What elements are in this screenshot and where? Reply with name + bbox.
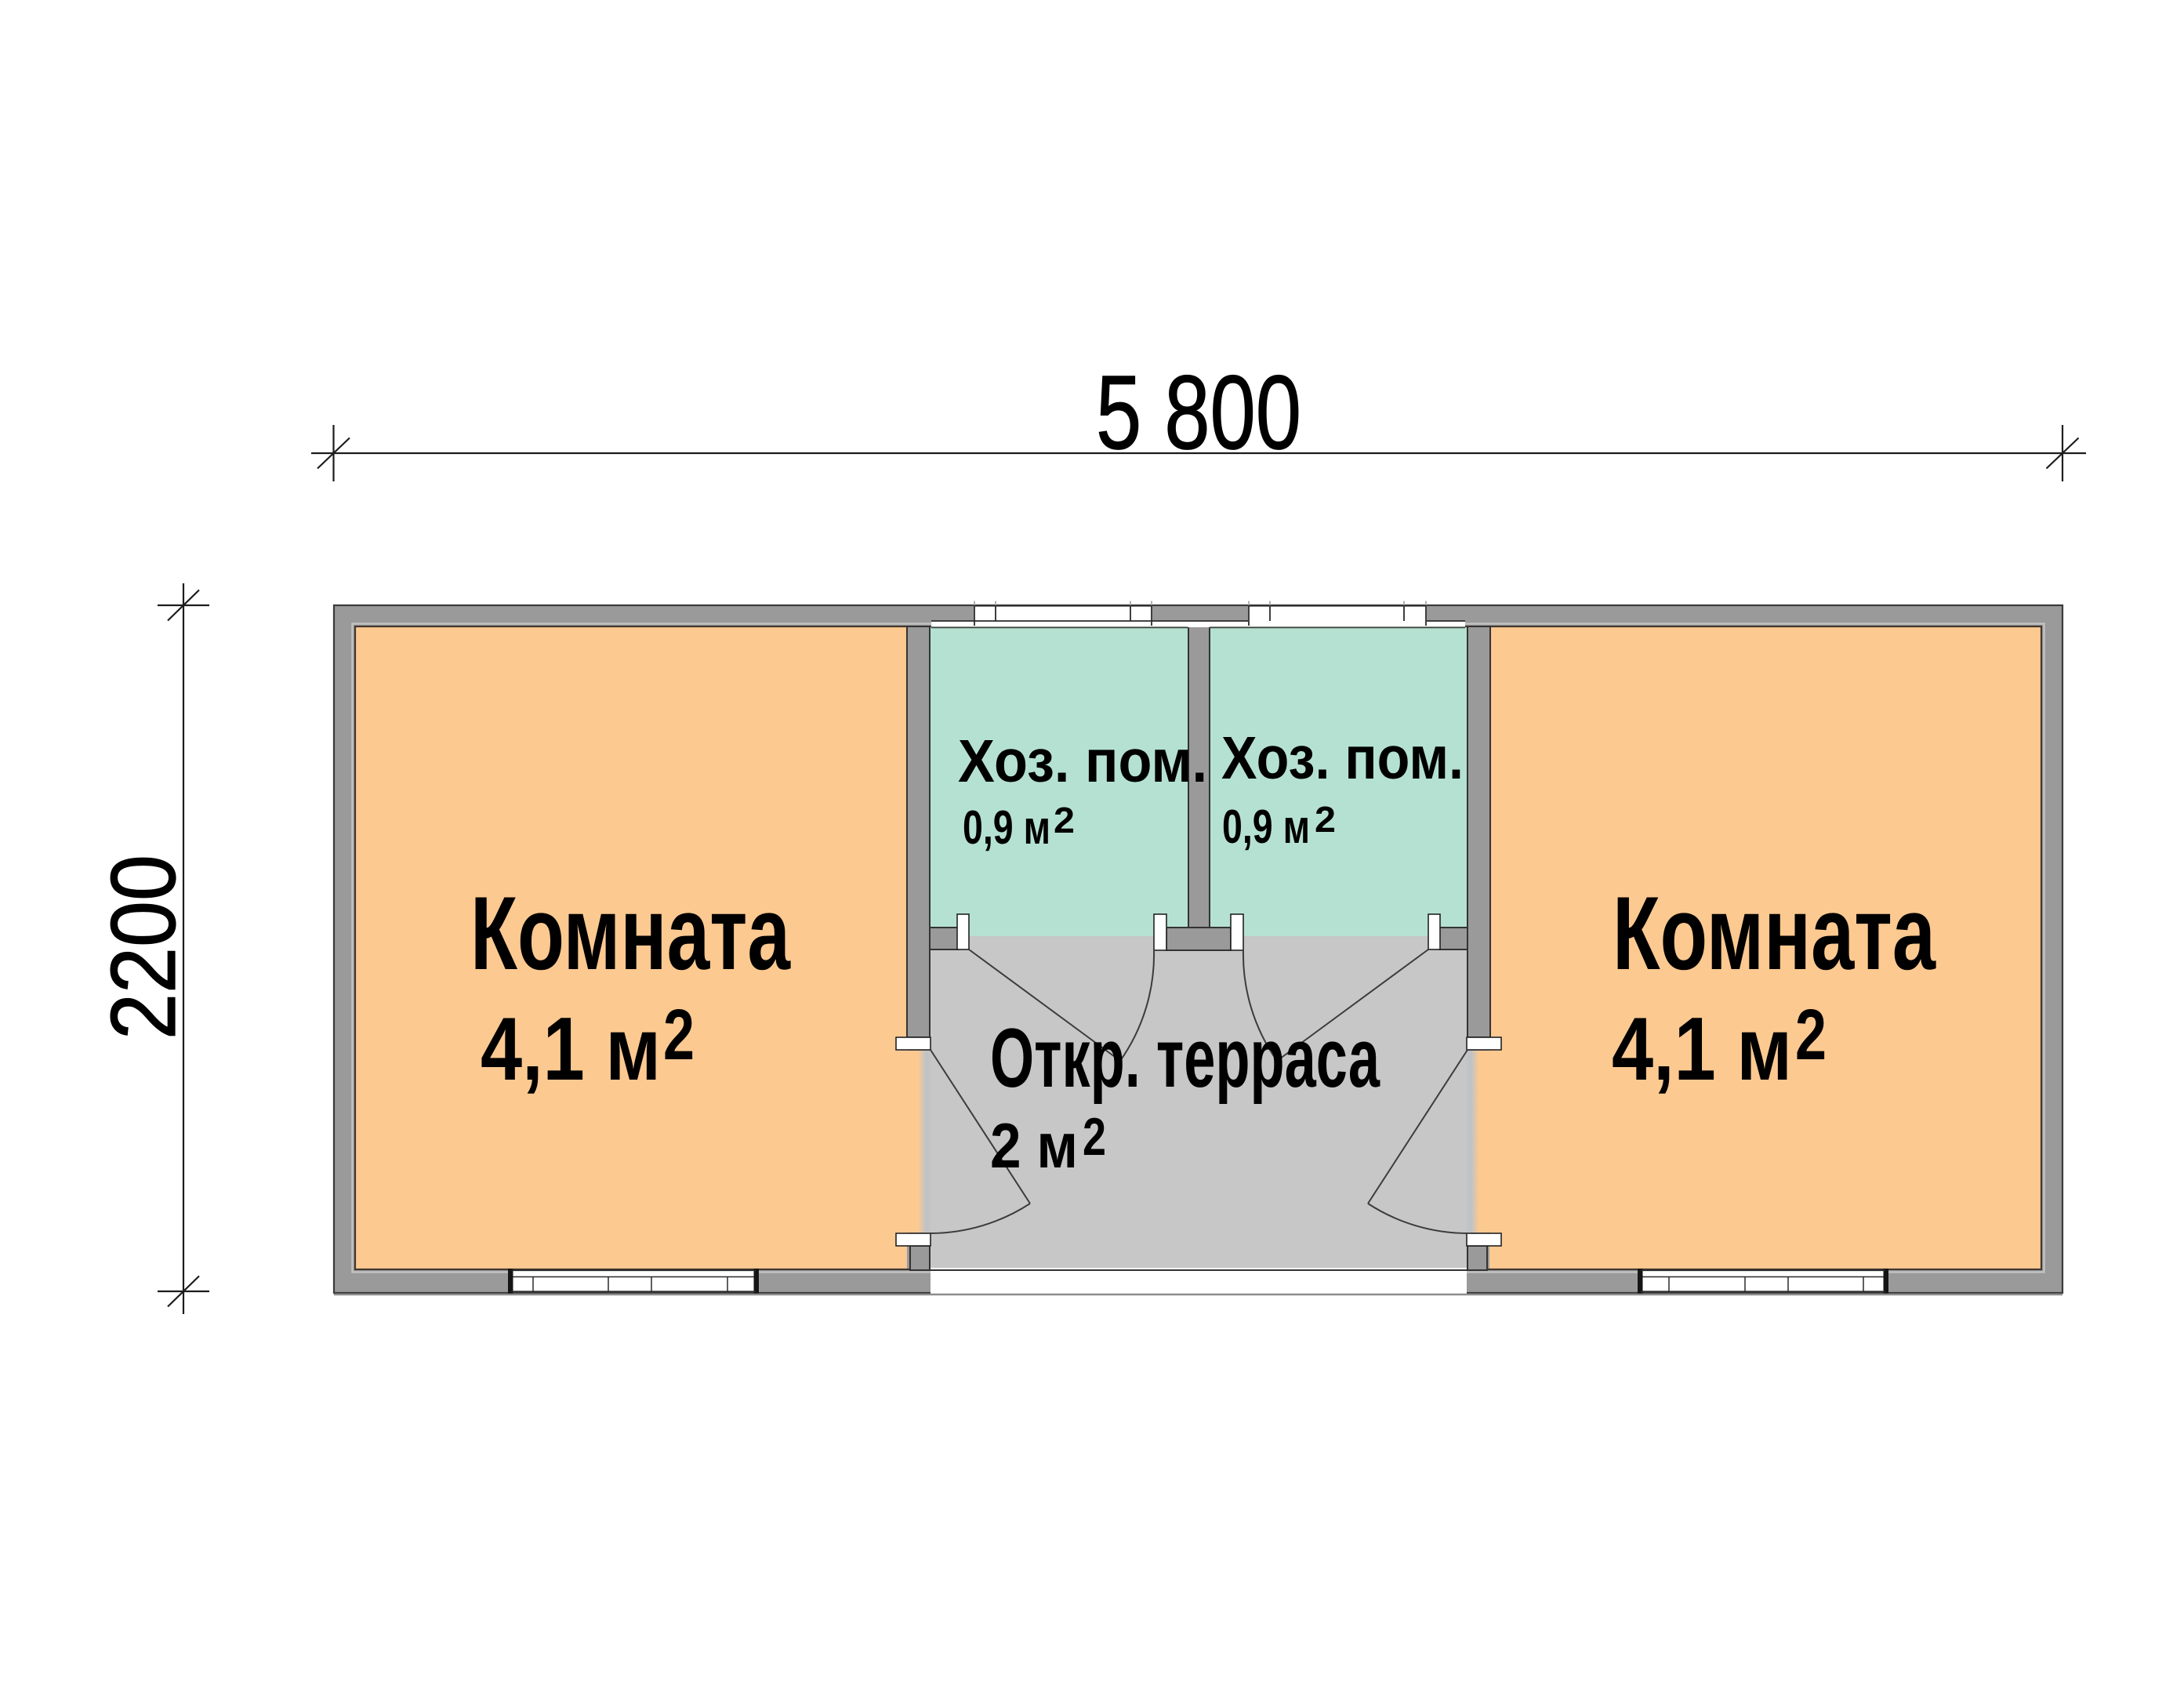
svg-text:2: 2 [1054,800,1075,840]
svg-text:2200: 2200 [92,855,194,1040]
svg-text:2: 2 [1795,995,1827,1075]
svg-text:0,9 м: 0,9 м [1222,801,1310,853]
svg-text:4,1 м: 4,1 м [481,1000,661,1099]
svg-text:Откр. терраса: Откр. терраса [990,1011,1380,1105]
svg-text:Хоз. пом.: Хоз. пом. [958,728,1207,795]
svg-text:Комната: Комната [470,876,791,992]
svg-text:2 м: 2 м [990,1111,1078,1182]
svg-text:0,9 м: 0,9 м [963,801,1050,854]
svg-text:Хоз. пом.: Хоз. пом. [1221,724,1464,792]
svg-text:2: 2 [1315,799,1336,840]
svg-text:2: 2 [1083,1107,1106,1167]
svg-text:5 800: 5 800 [1096,354,1301,471]
svg-text:4,1 м: 4,1 м [1612,1000,1792,1099]
svg-text:2: 2 [663,995,695,1075]
svg-text:Комната: Комната [1613,876,1936,992]
